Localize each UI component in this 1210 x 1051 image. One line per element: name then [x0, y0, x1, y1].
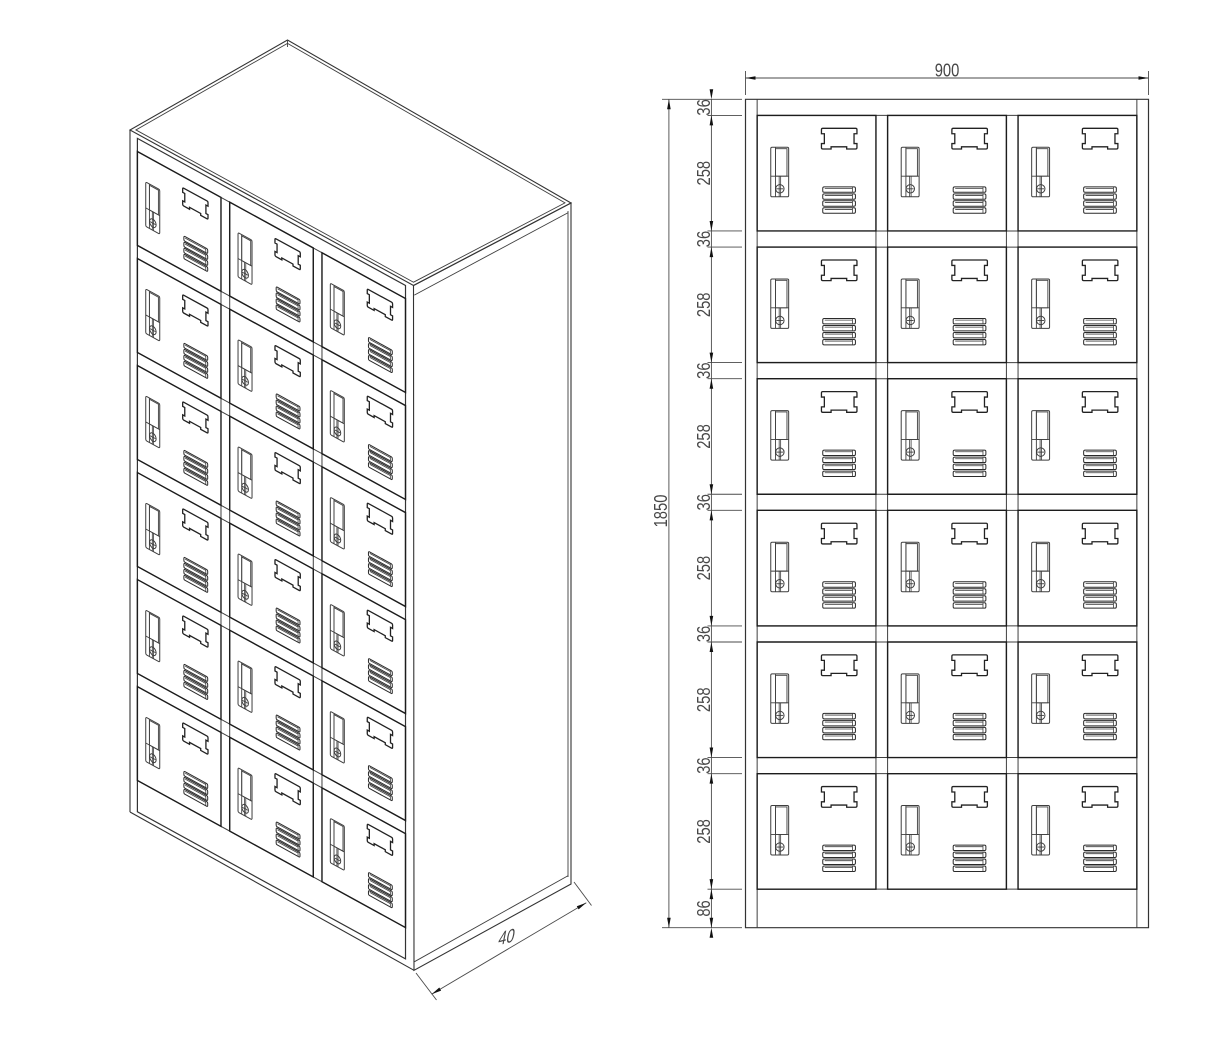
svg-text:258: 258	[694, 556, 714, 581]
svg-text:258: 258	[694, 293, 714, 318]
svg-text:36: 36	[694, 362, 714, 378]
svg-text:36: 36	[694, 757, 714, 773]
svg-text:258: 258	[694, 819, 714, 844]
svg-text:86: 86	[694, 900, 714, 916]
svg-text:36: 36	[694, 231, 714, 247]
svg-text:1850: 1850	[651, 495, 671, 528]
svg-text:36: 36	[694, 494, 714, 510]
svg-text:36: 36	[694, 99, 714, 115]
svg-text:258: 258	[694, 424, 714, 449]
svg-text:258: 258	[694, 161, 714, 186]
svg-text:36: 36	[694, 626, 714, 642]
svg-text:900: 900	[935, 61, 960, 81]
svg-text:258: 258	[694, 687, 714, 712]
